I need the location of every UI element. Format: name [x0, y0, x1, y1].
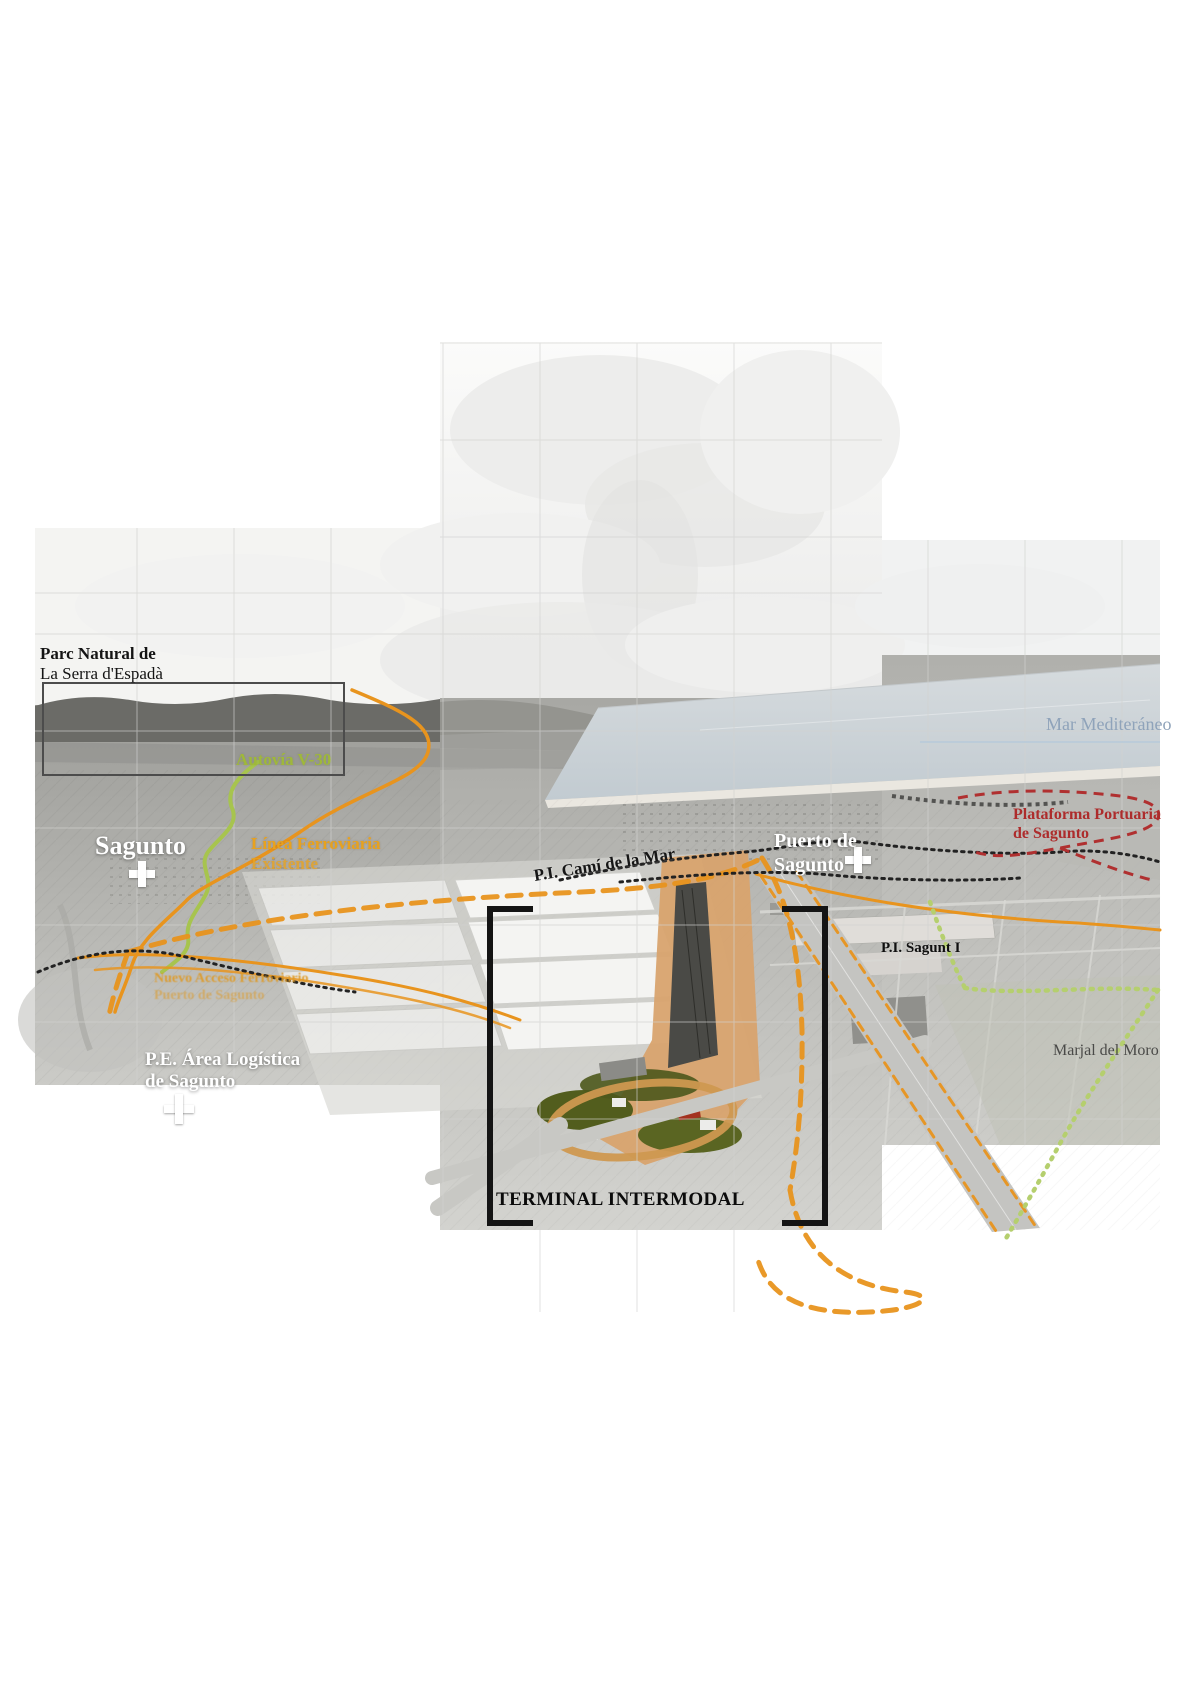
linea-ferroviaria-label: Línea Ferroviaria Existente [251, 834, 381, 874]
parc-natural-line2: La Serra d'Espadà [40, 664, 163, 684]
autovia-v30-label: Autovía V-30 [236, 750, 331, 770]
linea-ferroviaria-line1: Línea Ferroviaria [251, 834, 381, 854]
pe-area-line2: de Sagunto [145, 1071, 300, 1093]
pe-area-logistica-label: P.E. Área Logística de Sagunto [145, 1049, 300, 1094]
plataforma-line2: de Sagunto [1013, 825, 1161, 844]
sagunto-label: Sagunto [95, 831, 186, 862]
parc-natural-label: Parc Natural de La Serra d'Espadà [40, 644, 163, 684]
parc-natural-line1: Parc Natural de [40, 644, 163, 664]
mar-mediterraneo-label: Mar Mediteráneo [1046, 714, 1171, 735]
puerto-line2: Sagunto [774, 854, 857, 878]
terminal-intermodal-label: TERMINAL INTERMODAL [496, 1189, 745, 1211]
linea-ferroviaria-line2: Existente [251, 854, 381, 874]
marjal-del-moro-label: Marjal del Moro [1053, 1042, 1159, 1061]
nuevo-acceso-line2: Puerto de Sagunto [154, 988, 308, 1005]
terminal-bracket-right-icon [782, 906, 828, 1226]
nuevo-acceso-line1: Nuevo Acceso Ferroviario [154, 971, 308, 988]
situation-map: Parc Natural de La Serra d'Espadà Autoví… [0, 0, 1200, 1698]
pi-sagunt-label: P.I. Sagunt I [881, 940, 960, 958]
terminal-bracket-left-icon [487, 906, 533, 1226]
pe-area-cross-icon [164, 1094, 194, 1124]
nuevo-acceso-label: Nuevo Acceso Ferroviario Puerto de Sagun… [154, 971, 308, 1004]
plataforma-portuaria-label: Plataforma Portuaria de Sagunto [1013, 806, 1161, 844]
puerto-line1: Puerto de [774, 830, 857, 854]
plataforma-line1: Plataforma Portuaria [1013, 806, 1161, 825]
puerto-de-sagunto-label: Puerto de Sagunto [774, 830, 857, 877]
sagunto-cross-icon [129, 861, 155, 887]
pe-area-line1: P.E. Área Logística [145, 1049, 300, 1071]
